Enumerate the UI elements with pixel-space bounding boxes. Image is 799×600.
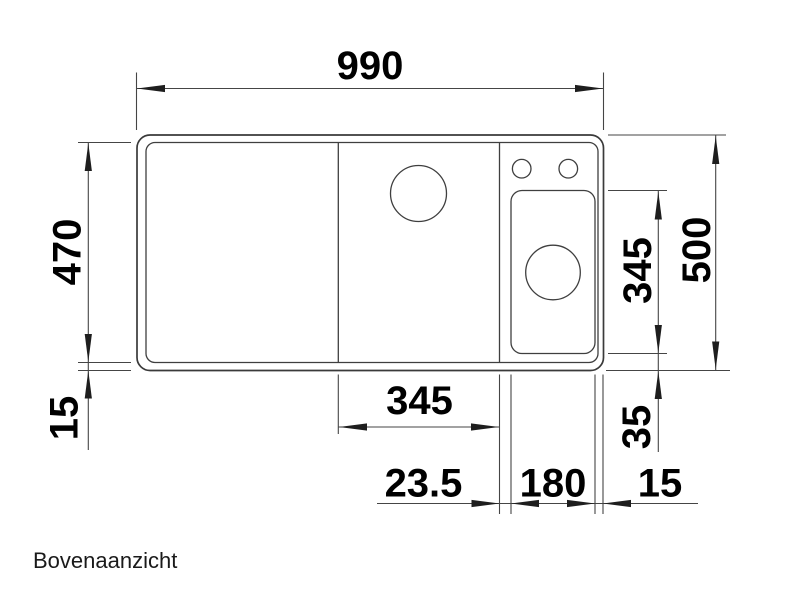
- sink-inner-rim: [146, 143, 598, 363]
- arrow-990-right: [575, 85, 603, 92]
- dim-label-mainbowl-width: 345: [386, 379, 453, 423]
- dim-label-subbowl-width: 180: [520, 462, 587, 506]
- dimension-labels: 990 470 15 500 345 35 345 23.5 180 15: [43, 44, 720, 506]
- arrow-990-left: [137, 85, 165, 92]
- dim-label-subbowl-depth: 345: [616, 237, 660, 304]
- view-caption: Bovenaanzicht: [33, 548, 177, 573]
- tap-hole-right: [559, 159, 578, 178]
- arrow-470-bottom: [85, 334, 92, 362]
- arrow-345r-top: [655, 192, 662, 220]
- arrow-15-left-up: [85, 371, 92, 399]
- arrow-15-right-left: [603, 500, 631, 507]
- main-bowl-drain-hole: [391, 166, 447, 222]
- tap-hole-left: [512, 159, 531, 178]
- dim-label-rear-offset: 35: [615, 405, 659, 450]
- dim-label-basin-depth: 470: [46, 219, 90, 286]
- arrow-500-bottom: [712, 342, 719, 370]
- dim-label-overall-width: 990: [337, 44, 404, 88]
- sink-top-view-drawing: 990 470 15 500 345 35 345 23.5 180 15 Bo…: [0, 0, 799, 600]
- sub-bowl-outline: [511, 191, 595, 354]
- arrow-35-up: [655, 371, 662, 399]
- arrow-345b-right: [471, 423, 499, 430]
- arrow-470-top: [85, 143, 92, 171]
- sink-body: [137, 135, 604, 371]
- arrow-235-right: [472, 500, 500, 507]
- dim-label-right-rim: 15: [638, 462, 683, 506]
- arrow-500-top: [712, 136, 719, 164]
- arrow-345r-bottom: [655, 325, 662, 353]
- drawing-canvas: 990 470 15 500 345 35 345 23.5 180 15 Bo…: [0, 0, 799, 600]
- dim-label-overall-depth: 500: [675, 217, 719, 284]
- dim-label-front-rim: 15: [43, 396, 87, 441]
- sub-bowl-drain-hole: [526, 245, 581, 300]
- arrow-345b-left: [339, 423, 367, 430]
- dim-label-bowl-spacing: 23.5: [385, 462, 463, 506]
